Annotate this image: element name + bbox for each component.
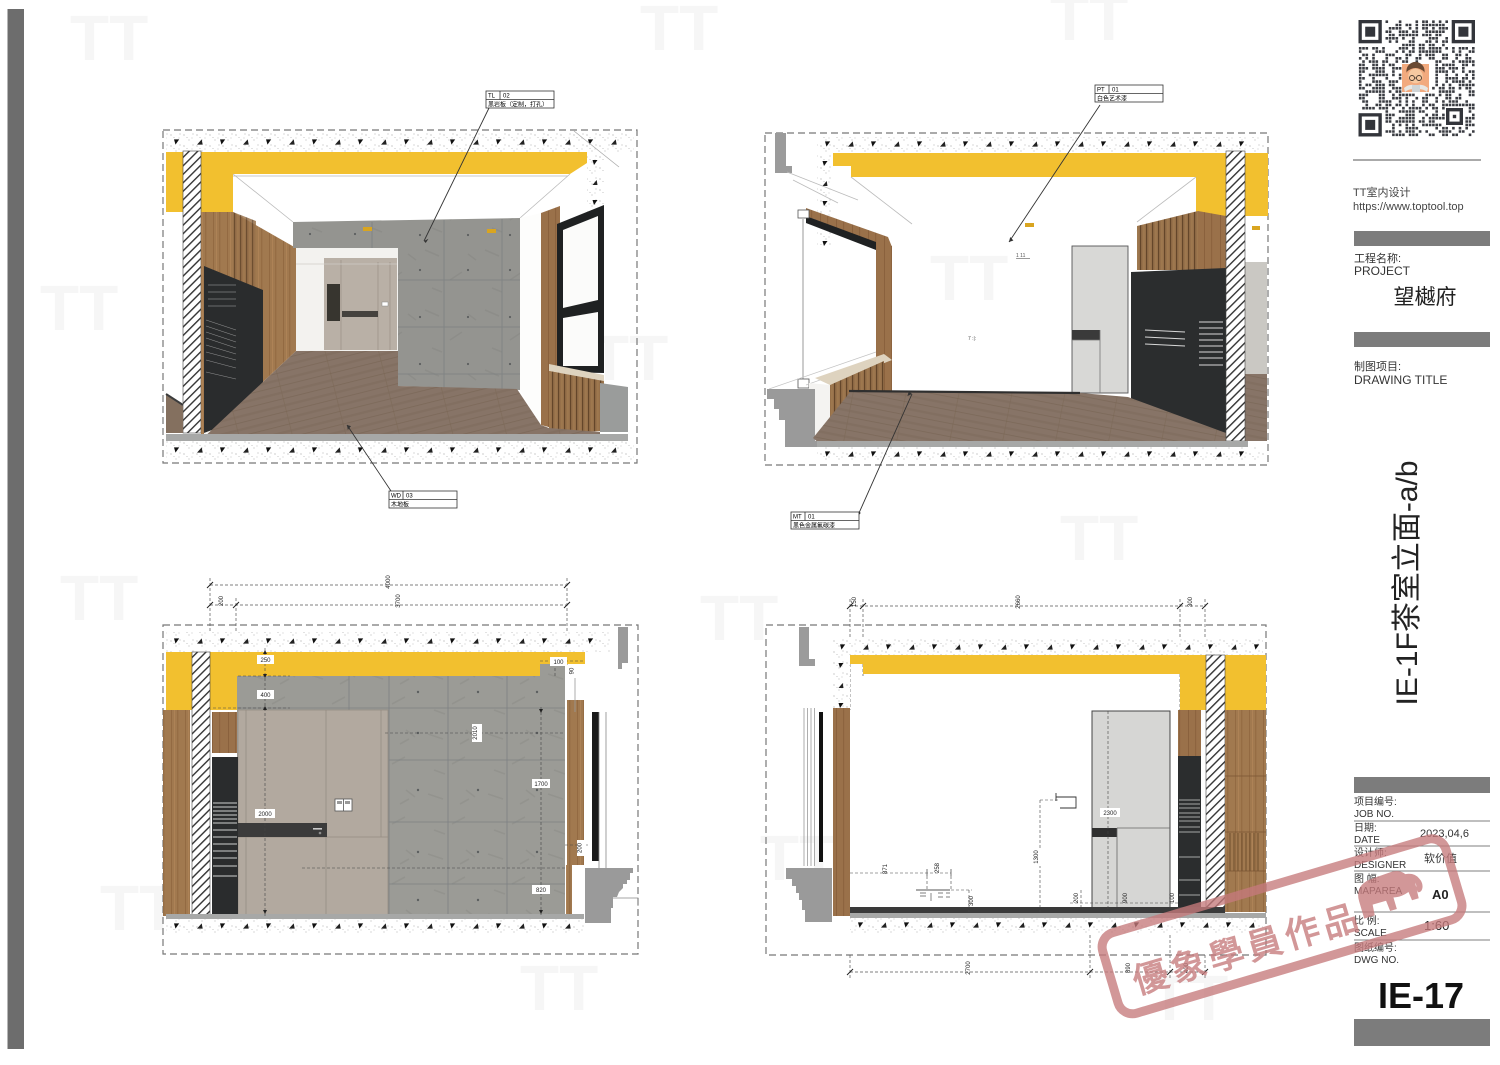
svg-text:2300: 2300 — [1103, 811, 1117, 817]
svg-text:7 :|:: 7 :|: — [968, 336, 976, 342]
svg-text:400: 400 — [260, 693, 271, 699]
svg-text:白色艺术漆: 白色艺术漆 — [1097, 95, 1127, 103]
svg-text:PT: PT — [1097, 88, 1105, 94]
svg-text:200: 200 — [1074, 892, 1080, 903]
svg-text:258: 258 — [935, 862, 941, 873]
svg-text:TT室内设计: TT室内设计 — [1353, 185, 1410, 199]
svg-text:IE-17: IE-17 — [1378, 975, 1464, 1016]
svg-text:300: 300 — [1188, 596, 1194, 607]
svg-text:TT: TT — [1060, 502, 1138, 574]
svg-text:150: 150 — [852, 596, 858, 607]
svg-text:https://www.toptool.top: https://www.toptool.top — [1353, 201, 1464, 213]
svg-text:IE-1F茶室立面-a/b: IE-1F茶室立面-a/b — [1391, 460, 1424, 705]
svg-text:1700: 1700 — [534, 782, 548, 788]
svg-text:2000: 2000 — [258, 812, 272, 818]
svg-text:300: 300 — [969, 895, 975, 906]
svg-text:黑色金属氟碳漆: 黑色金属氟碳漆 — [793, 522, 835, 530]
svg-text:1 11: 1 11 — [1016, 253, 1026, 259]
svg-text:DWG NO.: DWG NO. — [1354, 955, 1399, 966]
svg-text:200: 200 — [578, 842, 584, 853]
svg-text:TT: TT — [520, 952, 598, 1024]
svg-text:90: 90 — [570, 667, 576, 674]
svg-text:01: 01 — [808, 515, 815, 521]
svg-text:820: 820 — [536, 888, 547, 894]
svg-text:TT: TT — [1050, 0, 1128, 54]
svg-text:工程名称:: 工程名称: — [1354, 251, 1401, 265]
svg-text:900: 900 — [1123, 892, 1129, 903]
svg-text:TT: TT — [640, 0, 718, 64]
svg-text:2700: 2700 — [966, 961, 972, 975]
svg-text:MT: MT — [793, 515, 802, 521]
svg-text:3700: 3700 — [396, 594, 402, 608]
svg-text:1300: 1300 — [1034, 850, 1040, 864]
svg-text:100: 100 — [1170, 892, 1176, 903]
svg-text:200: 200 — [219, 595, 225, 606]
svg-text:木地板: 木地板 — [391, 501, 409, 509]
svg-text:TL: TL — [488, 94, 496, 100]
svg-text:日期:: 日期: — [1354, 822, 1377, 834]
svg-text:DRAWING TITLE: DRAWING TITLE — [1354, 373, 1447, 387]
svg-text:871: 871 — [883, 863, 889, 874]
svg-text:250: 250 — [260, 658, 271, 664]
svg-text:03: 03 — [406, 494, 413, 500]
svg-text:A0: A0 — [1432, 887, 1449, 902]
svg-text:TT: TT — [40, 272, 118, 344]
svg-text:望樾府: 望樾府 — [1394, 286, 1457, 309]
svg-text:项目编号:: 项目编号: — [1354, 795, 1397, 808]
svg-text:4000: 4000 — [386, 575, 392, 589]
svg-text:JOB NO.: JOB NO. — [1354, 809, 1394, 820]
svg-text:01: 01 — [1112, 88, 1119, 94]
svg-text:黑岩板（定制，打孔）: 黑岩板（定制，打孔） — [488, 101, 548, 109]
svg-text:TT: TT — [70, 2, 148, 74]
svg-text:DATE: DATE — [1354, 835, 1380, 846]
svg-text:TT: TT — [60, 562, 138, 634]
svg-text:PROJECT: PROJECT — [1354, 264, 1411, 278]
svg-text:2010: 2010 — [473, 726, 479, 740]
svg-text:制图项目:: 制图项目: — [1354, 360, 1401, 373]
svg-text:02: 02 — [503, 94, 510, 100]
svg-text:2660: 2660 — [1016, 595, 1022, 609]
svg-text:100: 100 — [553, 660, 564, 666]
svg-text:TT: TT — [930, 242, 1008, 314]
svg-text:WD: WD — [391, 494, 402, 500]
